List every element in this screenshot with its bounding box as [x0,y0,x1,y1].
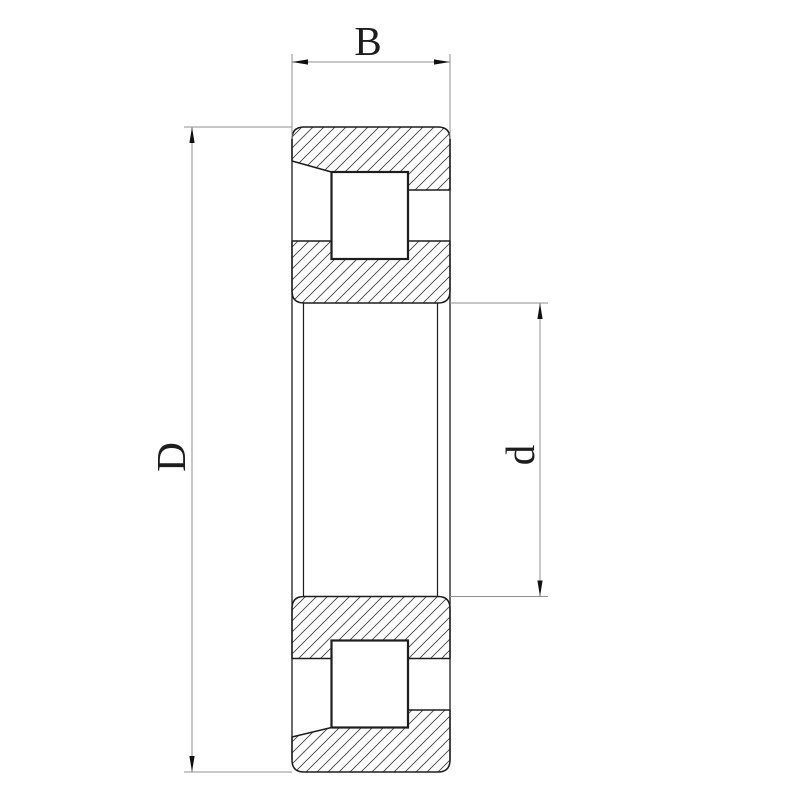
label-B: B [354,18,381,64]
arrow-B-right [434,59,450,64]
arrow-D-bottom [189,756,194,772]
arrow-d-top [537,303,542,319]
roller-top [332,172,409,259]
bearing-diagram: B D d [0,0,800,800]
label-d: d [497,445,543,466]
drawing-canvas: B D d [0,0,800,800]
roller-bottom [332,641,409,728]
rollers-group [332,172,409,728]
label-D: D [148,442,194,472]
arrow-B-left [292,59,308,64]
arrow-d-bottom [537,581,542,597]
arrow-D-top [189,127,194,143]
